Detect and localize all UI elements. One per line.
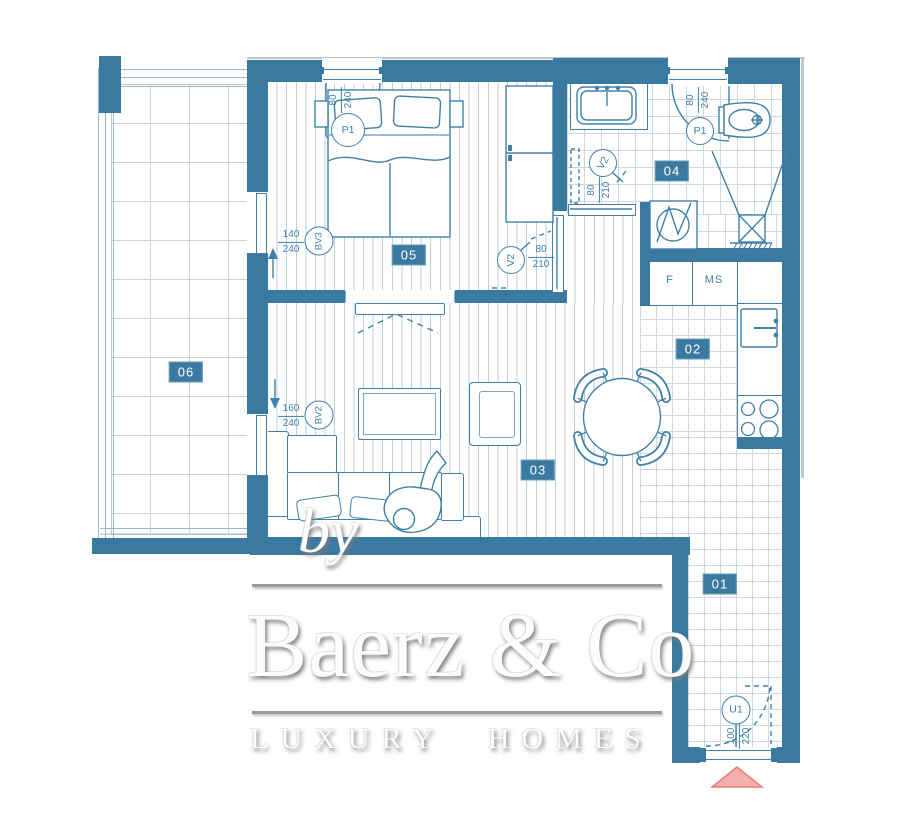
- door-label-bv3: BV3: [305, 227, 334, 256]
- watermark-brand: Baerz & Co: [246, 592, 695, 698]
- door-label-p1-bath: P1: [686, 117, 714, 145]
- watermark-rule-bottom: [252, 711, 662, 714]
- dim-u1: 100220: [726, 719, 752, 753]
- dim-p1-bedroom: 80240: [328, 83, 354, 117]
- dim-bv2: 160240: [274, 403, 308, 429]
- cabinet-label: MS: [705, 274, 724, 286]
- person-on-sofa: [384, 451, 446, 532]
- room-badge-02: 02: [676, 339, 710, 360]
- watermark-rule-top: [252, 584, 662, 587]
- room-badge-03: 03: [521, 460, 555, 481]
- dining-table: [584, 379, 661, 456]
- door-label-v2-bedroom: V2: [497, 246, 525, 274]
- dim-v2-bath: 80210: [586, 173, 612, 207]
- room-badge-04: 04: [655, 161, 689, 182]
- shower: [712, 151, 787, 252]
- door-label-p1-bedroom: P1: [331, 113, 365, 147]
- bath-sink: [577, 86, 636, 124]
- watermark-tagline: LUXURY HOMES: [250, 722, 653, 756]
- dim-bv3: 140240: [274, 229, 308, 255]
- room-badge-05: 05: [392, 245, 426, 266]
- dim-p1-bath: 80240: [685, 83, 711, 117]
- dim-v2-bedroom: 80210: [524, 244, 558, 270]
- door-label-bv2: BV2: [305, 401, 334, 430]
- room-badge-01: 01: [703, 574, 737, 595]
- stove-burners: [742, 400, 779, 439]
- balcony-door-arrows: [268, 248, 280, 409]
- room-badge-06: 06: [169, 362, 203, 383]
- floorplan: 01 02 03 04 05 06 P1 P1 V2 V2 BV3 BV2 U1…: [0, 0, 914, 818]
- kitchen-sink: [741, 309, 778, 347]
- entrance-arrow: [712, 767, 762, 787]
- wardrobe: [506, 86, 553, 222]
- fridge-label: F: [666, 274, 674, 286]
- watermark-by: by: [298, 494, 358, 568]
- toilet: [719, 103, 770, 138]
- washing-machine: [650, 201, 697, 249]
